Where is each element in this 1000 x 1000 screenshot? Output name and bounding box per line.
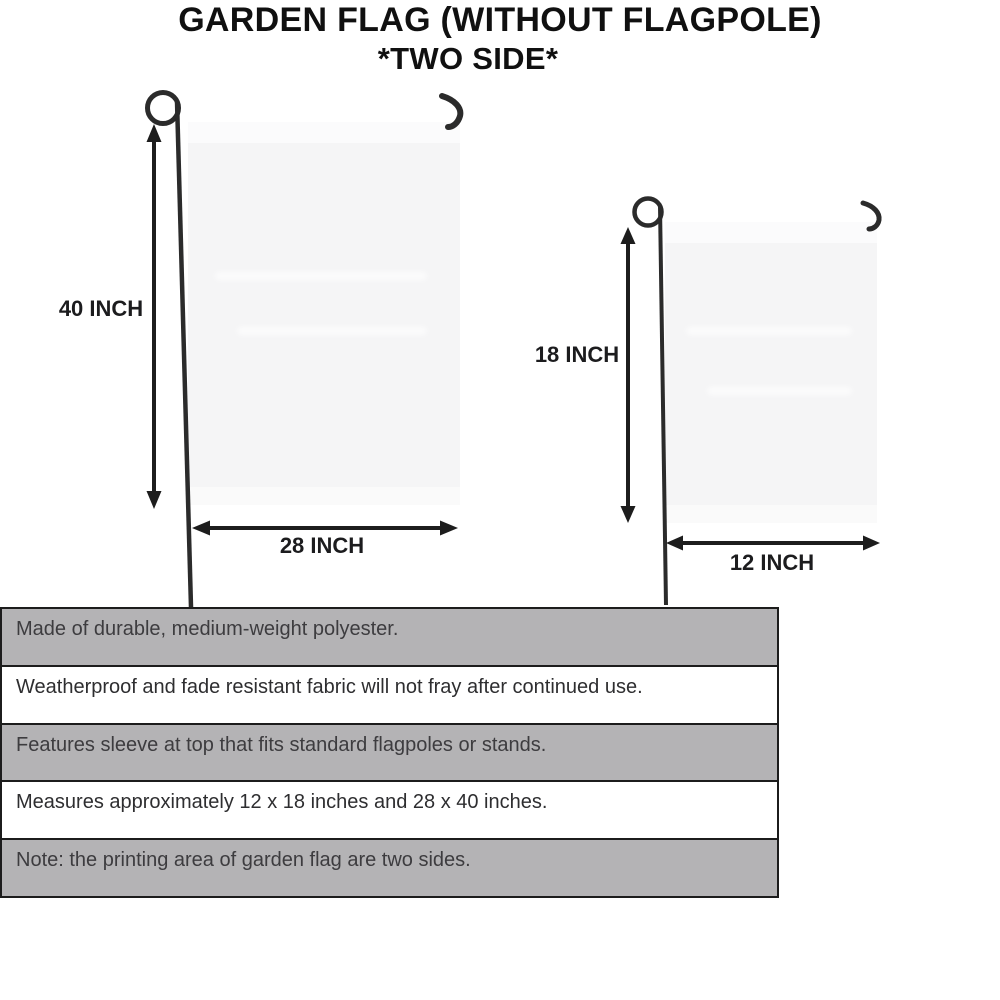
small-flag-panel: [665, 222, 877, 523]
small-height-label: 18 INCH: [516, 342, 638, 368]
large-width-label: 28 INCH: [252, 533, 392, 559]
fabric-wrinkle: [237, 327, 427, 335]
small-flagpole-loop-icon: [635, 199, 662, 226]
large-height-label: 40 INCH: [40, 296, 162, 322]
garden-flag-infographic: GARDEN FLAG (WITHOUT FLAGPOLE) *TWO SIDE…: [0, 0, 1000, 1000]
feature-row-note: Note: the printing area of garden flag a…: [2, 838, 777, 896]
small-width-arrow: [666, 536, 880, 551]
small-height-arrow: [621, 227, 636, 523]
feature-list: Made of durable, medium-weight polyester…: [0, 607, 779, 898]
page-subtitle: *TWO SIDE*: [0, 41, 936, 77]
small-width-label: 12 INCH: [702, 550, 842, 576]
feature-row-weatherproof: Weatherproof and fade resistant fabric w…: [2, 665, 777, 723]
fabric-wrinkle: [215, 272, 427, 280]
feature-row-sleeve: Features sleeve at top that fits standar…: [2, 723, 777, 781]
fabric-wrinkle: [707, 387, 851, 395]
feature-row-measures: Measures approximately 12 x 18 inches an…: [2, 780, 777, 838]
page-title: GARDEN FLAG (WITHOUT FLAGPOLE): [0, 1, 1000, 40]
large-flagpole-loop-icon: [148, 93, 179, 124]
feature-row-material: Made of durable, medium-weight polyester…: [2, 609, 777, 665]
fabric-wrinkle: [686, 327, 851, 335]
large-flag-panel: [188, 122, 460, 505]
